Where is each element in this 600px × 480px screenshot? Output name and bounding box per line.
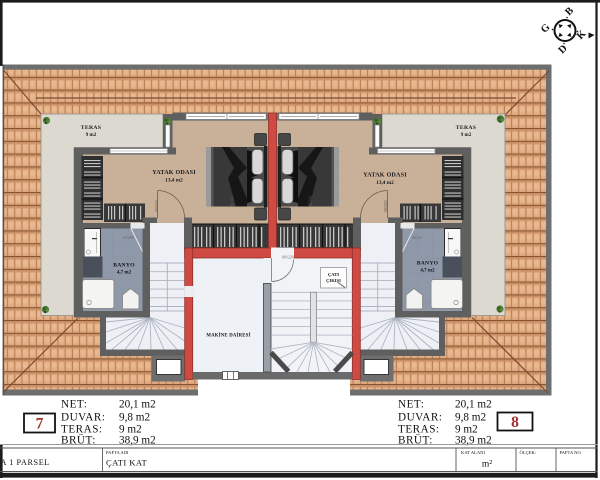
- svg-text:8: 8: [511, 414, 519, 431]
- svg-text:NET:: NET:: [398, 399, 424, 411]
- svg-text:9,8 m2: 9,8 m2: [455, 412, 486, 424]
- svg-text:80/210: 80/210: [412, 236, 423, 240]
- svg-text:DUVAR:: DUVAR:: [61, 412, 105, 424]
- svg-text:YATAK ODASI: YATAK ODASI: [363, 173, 407, 179]
- svg-text:60/220: 60/220: [154, 200, 159, 211]
- svg-text:ÇATI: ÇATI: [328, 272, 339, 277]
- svg-text:13,4 m2: 13,4 m2: [376, 180, 394, 186]
- svg-text:TERAS: TERAS: [81, 125, 101, 131]
- svg-text:9 m2: 9 m2: [86, 133, 97, 138]
- svg-text:ÇATI KAT: ÇATI KAT: [106, 458, 148, 468]
- svg-text:KAT ALANI: KAT ALANI: [461, 450, 486, 455]
- svg-text:m²: m²: [482, 460, 492, 470]
- svg-text:PAFTA ADI: PAFTA ADI: [106, 450, 129, 455]
- svg-text:4,7 m2: 4,7 m2: [420, 269, 435, 274]
- svg-text:80/200: 80/200: [123, 236, 134, 240]
- svg-text:20,1 m2: 20,1 m2: [119, 399, 156, 411]
- svg-text:4,7 m2: 4,7 m2: [117, 271, 132, 276]
- svg-text:82/336: 82/336: [231, 196, 235, 206]
- svg-text:9 m2: 9 m2: [461, 133, 472, 138]
- svg-text:20,1 m2: 20,1 m2: [455, 399, 492, 411]
- svg-text:100/220: 100/220: [281, 256, 294, 260]
- svg-text:DUVAR:: DUVAR:: [398, 412, 442, 424]
- svg-text:ÖLÇEK:: ÖLÇEK:: [520, 450, 537, 455]
- svg-text:BANYO: BANYO: [417, 261, 439, 267]
- svg-text:ÇIKIŞI: ÇIKIŞI: [326, 278, 341, 283]
- svg-text:13,4 m2: 13,4 m2: [165, 178, 183, 184]
- svg-text:DA 1 PARSEL: DA 1 PARSEL: [0, 458, 50, 467]
- svg-text:PAFTA NO: PAFTA NO: [560, 450, 582, 455]
- svg-text:7: 7: [36, 416, 44, 433]
- svg-text:TERAS: TERAS: [456, 125, 476, 131]
- svg-text:NET:: NET:: [61, 399, 87, 411]
- svg-text:MAKİNE DAİRESİ: MAKİNE DAİRESİ: [206, 333, 250, 339]
- svg-text:82/336: 82/336: [309, 196, 313, 206]
- svg-text:9,8 m2: 9,8 m2: [119, 412, 150, 424]
- svg-text:BANYO: BANYO: [113, 263, 135, 269]
- svg-text:YATAK ODASI: YATAK ODASI: [152, 170, 196, 176]
